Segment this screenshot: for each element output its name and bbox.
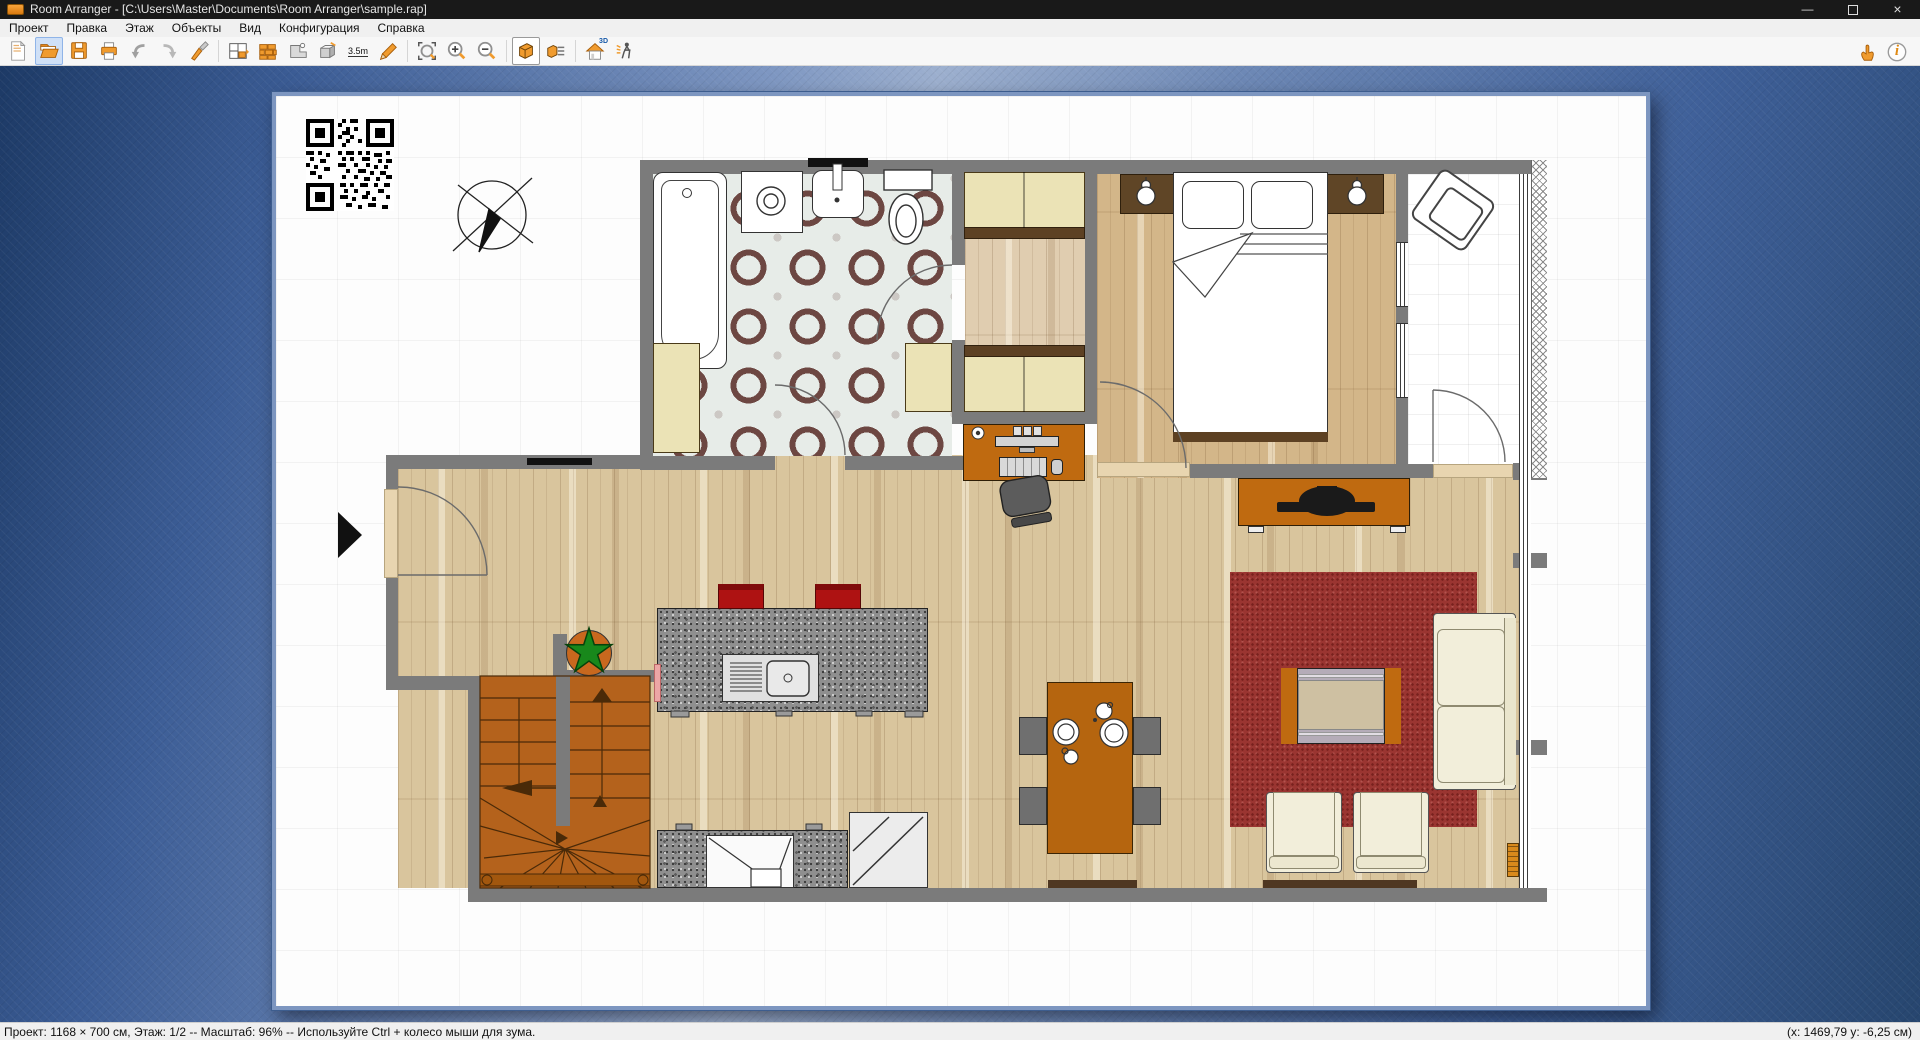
stairs-divider-wall — [556, 676, 570, 826]
paint-icon[interactable] — [185, 37, 213, 65]
entry-door-threshold — [384, 489, 398, 578]
status-coordinates: (x: 1469,79 y: -6,25 см) — [1787, 1025, 1912, 1039]
bedroom-window[interactable] — [1396, 323, 1408, 398]
status-bar: Проект: 1168 × 700 см, Этаж: 1/2 -- Масш… — [0, 1022, 1920, 1040]
desk-speakers — [1033, 426, 1042, 436]
dining-chair[interactable] — [1019, 717, 1047, 755]
wardrobe-divider — [1023, 357, 1025, 412]
info-icon[interactable]: i — [1883, 38, 1911, 66]
zoom-region-icon[interactable] — [413, 37, 441, 65]
info-letter: i — [1884, 39, 1910, 65]
window-wall-glazing[interactable] — [1519, 174, 1531, 888]
toolbar-separator — [506, 40, 507, 62]
pencil-icon[interactable] — [374, 37, 402, 65]
minimize-button[interactable]: — — [1785, 0, 1830, 19]
desk-speakers — [1023, 426, 1032, 436]
house3d-label: 3D — [599, 38, 608, 45]
zoom-out-icon[interactable] — [473, 37, 501, 65]
washing-machine[interactable] — [741, 171, 803, 233]
radiator — [1507, 843, 1519, 877]
sofa-cushion — [1437, 706, 1505, 783]
sofa-cushion — [1437, 629, 1505, 706]
window-sill — [1263, 880, 1417, 888]
wall — [1085, 172, 1097, 412]
measure-label: 3.5m — [348, 46, 368, 57]
wall — [386, 455, 640, 469]
balcony-door-threshold — [1433, 464, 1513, 478]
window-title: Room Arranger - [C:\Users\Master\Documen… — [30, 2, 427, 16]
dining-table[interactable] — [1047, 682, 1133, 854]
menu-configuration[interactable]: Конфигурация — [270, 19, 369, 37]
dining-chair[interactable] — [1019, 787, 1047, 825]
plant-pot[interactable] — [566, 630, 612, 676]
bathtub-basin — [661, 180, 719, 360]
print-icon[interactable] — [95, 37, 123, 65]
coffee-table-strip — [1298, 674, 1384, 678]
menu-bar: Проект Правка Этаж Объекты Вид Конфигура… — [0, 19, 1920, 37]
redo-icon[interactable] — [155, 37, 183, 65]
toolbar-separator — [575, 40, 576, 62]
coffee-table-rail — [1281, 668, 1298, 744]
pillow — [1182, 181, 1244, 229]
armchair-back — [1356, 856, 1426, 869]
monitor-stand — [1019, 447, 1035, 453]
object-3d-icon[interactable] — [314, 37, 342, 65]
app-logo-icon — [7, 4, 24, 15]
mouse — [1051, 459, 1063, 475]
wall — [640, 456, 775, 470]
restore-button[interactable] — [1830, 0, 1875, 19]
window-sill — [1048, 880, 1137, 888]
house-3d-icon[interactable]: 3D — [581, 37, 609, 65]
wall — [640, 160, 653, 470]
bathroom-sink[interactable] — [812, 170, 864, 218]
bedroom-window[interactable] — [1396, 242, 1408, 307]
bedroom-door-threshold — [1097, 462, 1190, 477]
wall — [845, 456, 965, 470]
island-towel — [654, 664, 661, 702]
armchair-seat — [1360, 792, 1422, 856]
dining-chair[interactable] — [1133, 717, 1161, 755]
bar-stool[interactable] — [718, 584, 764, 609]
menu-view[interactable]: Вид — [230, 19, 270, 37]
view-3d-icon[interactable] — [512, 37, 540, 65]
doormat — [527, 458, 592, 465]
wall — [468, 676, 480, 902]
zoom-in-icon[interactable] — [443, 37, 471, 65]
wall — [1396, 307, 1408, 323]
walkthrough-icon[interactable] — [611, 37, 639, 65]
keyboard — [999, 457, 1047, 477]
new-project-icon[interactable] — [5, 37, 33, 65]
coffee-table-top — [1298, 680, 1384, 730]
tv-cabinet[interactable] — [1238, 478, 1410, 526]
menu-objects[interactable]: Объекты — [163, 19, 231, 37]
dining-chair[interactable] — [1133, 787, 1161, 825]
wall — [386, 676, 470, 690]
menu-floor[interactable]: Этаж — [116, 19, 163, 37]
bathroom-cabinet[interactable] — [905, 343, 952, 412]
undo-icon[interactable] — [125, 37, 153, 65]
open-project-icon[interactable] — [35, 37, 63, 65]
bar-stool[interactable] — [815, 584, 861, 609]
pillow — [1251, 181, 1313, 229]
tv-cabinet-foot — [1390, 526, 1406, 533]
menu-edit[interactable]: Правка — [58, 19, 117, 37]
restore-icon — [1848, 5, 1858, 15]
hatched-railing — [1531, 160, 1547, 478]
island-sink-unit — [722, 654, 819, 702]
bathroom-cabinet[interactable] — [653, 343, 700, 453]
toolbar-separator — [407, 40, 408, 62]
sofa-back — [1504, 618, 1516, 785]
wall-tool-icon[interactable] — [284, 37, 312, 65]
wall — [1396, 172, 1408, 242]
wall — [1396, 398, 1408, 480]
monitor — [995, 436, 1059, 447]
plan-editor-icon[interactable] — [224, 37, 252, 65]
sink-shelf — [808, 158, 868, 167]
wardrobe-edge — [964, 227, 1085, 239]
menu-help[interactable]: Справка — [369, 19, 434, 37]
tv-cabinet-foot — [1248, 526, 1264, 533]
toolbar-separator — [218, 40, 219, 62]
close-button[interactable]: × — [1875, 0, 1920, 19]
armchair-back — [1269, 856, 1339, 869]
wall — [468, 888, 1547, 902]
armchair-seat — [1273, 792, 1335, 856]
wall — [386, 578, 398, 690]
wall — [952, 410, 1097, 424]
toolbar: 3.5m 3D — [0, 37, 1920, 66]
measure-icon[interactable]: 3.5m — [344, 37, 372, 65]
wardrobe-divider — [1023, 172, 1025, 228]
coffee-table-strip — [1298, 732, 1384, 736]
save-icon[interactable] — [65, 37, 93, 65]
bed-foot-rail — [1173, 432, 1328, 442]
menu-project[interactable]: Проект — [0, 19, 58, 37]
coffee-table-rail — [1384, 668, 1401, 744]
bricks-icon[interactable] — [254, 37, 282, 65]
desk-speakers — [1013, 426, 1022, 436]
window-controls: — × — [1785, 0, 1920, 19]
refrigerator[interactable] — [849, 812, 928, 888]
status-project-info: Проект: 1168 × 700 см, Этаж: 1/2 -- Масш… — [4, 1025, 535, 1039]
title-bar: Room Arranger - [C:\Users\Master\Documen… — [0, 0, 1920, 19]
wardrobe-edge — [964, 345, 1085, 357]
pointer-hand-icon[interactable] — [1853, 38, 1881, 66]
cooker-hood[interactable] — [706, 835, 794, 888]
toolbar-right: i — [1852, 37, 1912, 66]
view-3d-list-icon[interactable] — [542, 37, 570, 65]
